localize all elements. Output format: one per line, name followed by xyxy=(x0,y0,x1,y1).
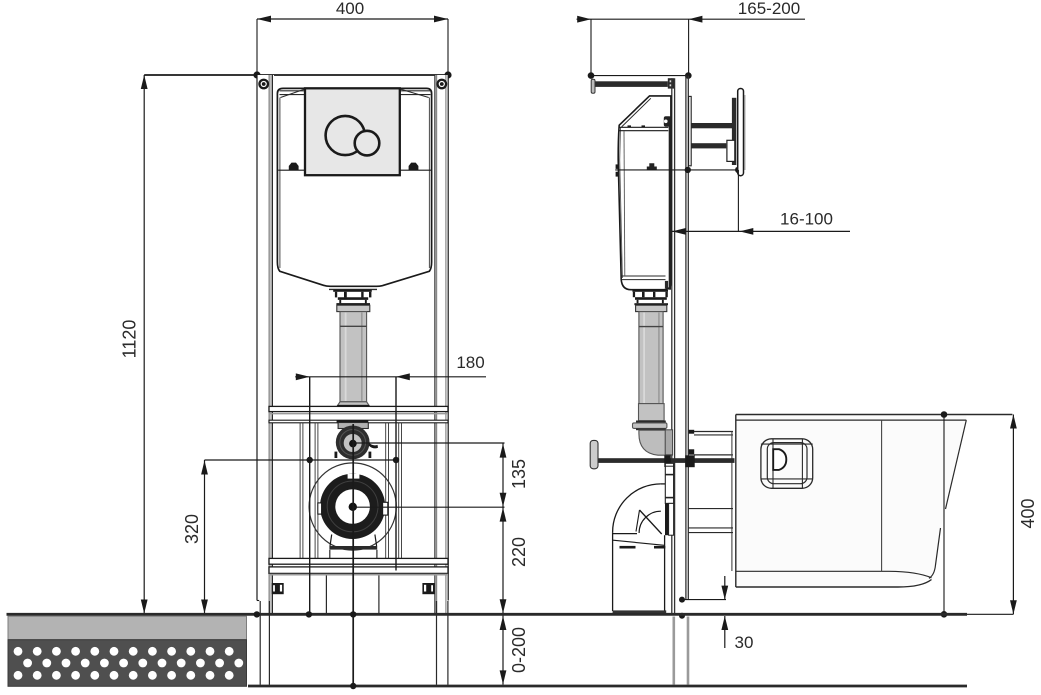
svg-text:400: 400 xyxy=(1018,498,1038,528)
svg-text:400: 400 xyxy=(336,0,364,18)
svg-text:135: 135 xyxy=(509,459,529,489)
svg-text:30: 30 xyxy=(735,633,754,652)
svg-text:165-200: 165-200 xyxy=(738,0,800,18)
svg-text:180: 180 xyxy=(456,353,484,372)
svg-text:16-100: 16-100 xyxy=(780,210,833,229)
svg-text:0-200: 0-200 xyxy=(509,627,529,673)
svg-text:320: 320 xyxy=(182,514,202,544)
svg-text:220: 220 xyxy=(509,537,529,567)
svg-text:1120: 1120 xyxy=(120,320,140,359)
